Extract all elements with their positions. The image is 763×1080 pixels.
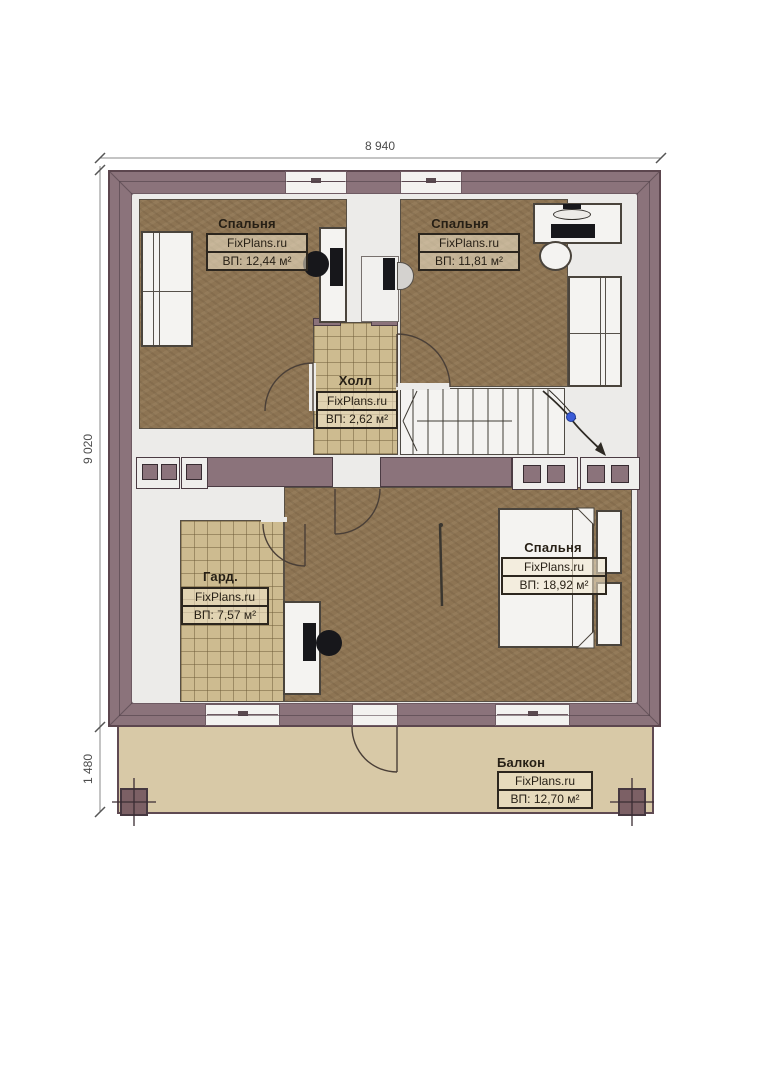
- window: [400, 171, 462, 194]
- room-name-balcony: Балкон: [497, 755, 597, 770]
- window-tick: [311, 178, 321, 183]
- desk-lamp-icon: [553, 209, 591, 220]
- bed-icon: [141, 231, 193, 347]
- room-name-hall: Холл: [313, 373, 398, 388]
- area-text: ВП: 18,92 м²: [503, 575, 605, 593]
- brand-text: FixPlans.ru: [183, 589, 267, 605]
- mid-wall-segment-right: [380, 457, 512, 487]
- mid-wall-block: [611, 465, 629, 483]
- door-opening: [261, 517, 287, 522]
- monitor-icon: [330, 248, 343, 286]
- window: [285, 171, 347, 194]
- window-tick: [426, 178, 436, 183]
- desk-lamp-icon: [563, 204, 581, 209]
- brand-text: FixPlans.ru: [420, 235, 518, 251]
- window: [495, 704, 570, 726]
- area-text: ВП: 7,57 м²: [183, 605, 267, 623]
- room-label-bedroom-top-left: FixPlans.ru ВП: 12,44 м²: [206, 233, 308, 271]
- corridor-top-left: [140, 430, 313, 456]
- bed-line: [570, 333, 620, 334]
- dimension-balcony-label: 1 480: [81, 739, 95, 799]
- room-name-wardrobe: Гард.: [173, 569, 268, 584]
- floor-plan-page: Спальня FixPlans.ru ВП: 12,44 м² Спальня…: [0, 0, 763, 1080]
- bed-icon: [568, 276, 622, 387]
- monitor-icon: [383, 258, 395, 290]
- mid-wall-block: [161, 464, 177, 480]
- floor-hall: [313, 322, 398, 455]
- mid-wall-block: [523, 465, 541, 483]
- monitor-icon: [303, 623, 316, 661]
- room-label-wardrobe: FixPlans.ru ВП: 7,57 м²: [181, 587, 269, 625]
- area-text: ВП: 12,70 м²: [499, 789, 591, 807]
- bed-line: [153, 233, 154, 345]
- printer-icon: [551, 224, 595, 238]
- mid-wall-segment-left: [207, 457, 333, 487]
- mid-wall-block: [587, 465, 605, 483]
- room-label-balcony: FixPlans.ru ВП: 12,70 м²: [497, 771, 593, 809]
- bed-line: [143, 291, 191, 292]
- brand-text: FixPlans.ru: [499, 773, 591, 789]
- dimension-height-label: 9 020: [81, 419, 95, 479]
- door-opening: [396, 383, 450, 390]
- room-label-bedroom-master: FixPlans.ru ВП: 18,92 м²: [501, 557, 607, 595]
- dimension-width-label: 8 940: [330, 139, 430, 153]
- window-tick: [238, 711, 248, 716]
- mid-wall-panel-3: [512, 457, 578, 490]
- mid-wall-block: [142, 464, 158, 480]
- staircase: [400, 388, 565, 455]
- room-name-bedroom-top-left: Спальня: [197, 216, 297, 231]
- mid-wall-block: [547, 465, 565, 483]
- area-text: ВП: 11,81 м²: [420, 251, 518, 269]
- balcony-column: [120, 788, 148, 816]
- room-name-bedroom-master: Спальня: [503, 540, 603, 555]
- bed-line: [600, 278, 601, 385]
- balcony-column: [618, 788, 646, 816]
- bed-line: [605, 278, 606, 385]
- brand-text: FixPlans.ru: [318, 393, 396, 409]
- room-label-hall: FixPlans.ru ВП: 2,62 м²: [316, 391, 398, 429]
- office-chair-icon: [316, 630, 342, 656]
- window: [205, 704, 280, 726]
- brand-text: FixPlans.ru: [208, 235, 306, 251]
- mid-wall-block: [186, 464, 202, 480]
- area-text: ВП: 2,62 м²: [318, 409, 396, 427]
- bed-line: [159, 233, 160, 345]
- room-name-bedroom-top-right: Спальня: [410, 216, 510, 231]
- window-tick: [528, 711, 538, 716]
- area-text: ВП: 12,44 м²: [208, 251, 306, 269]
- chair-icon: [539, 241, 572, 271]
- balcony-door-opening: [352, 704, 398, 726]
- room-label-bedroom-top-right: FixPlans.ru ВП: 11,81 м²: [418, 233, 520, 271]
- brand-text: FixPlans.ru: [503, 559, 605, 575]
